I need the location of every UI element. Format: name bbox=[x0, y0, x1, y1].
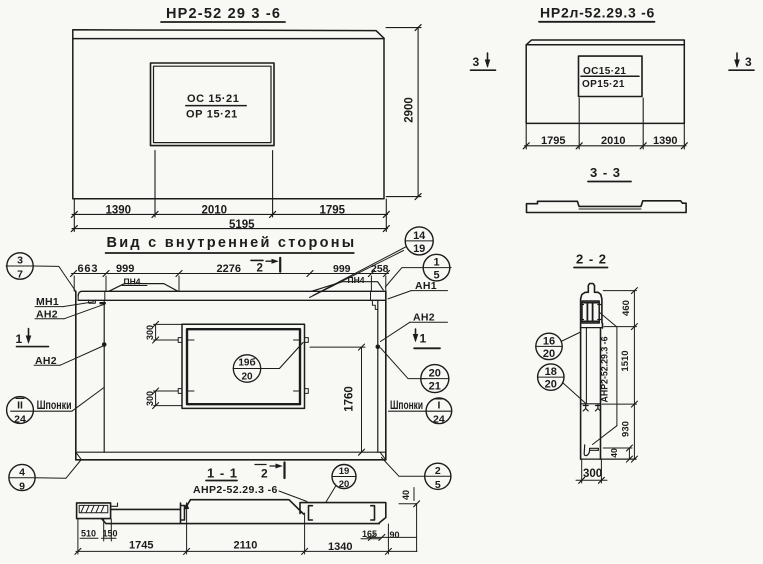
svg-text:I: I bbox=[437, 399, 440, 411]
svg-text:II: II bbox=[17, 399, 23, 411]
svg-text:2900: 2900 bbox=[404, 97, 416, 123]
svg-text:9: 9 bbox=[19, 480, 25, 492]
svg-text:АНР2-52.29.3 -6: АНР2-52.29.3 -6 bbox=[193, 484, 278, 496]
svg-text:3: 3 bbox=[17, 255, 23, 267]
svg-text:ПН4: ПН4 bbox=[124, 276, 141, 286]
svg-text:5195: 5195 bbox=[229, 219, 255, 231]
svg-text:ОР15·21: ОР15·21 bbox=[582, 79, 625, 90]
svg-text:21: 21 bbox=[429, 381, 441, 393]
svg-text:510: 510 bbox=[81, 529, 96, 539]
svg-text:7: 7 bbox=[17, 269, 23, 281]
svg-text:1340: 1340 bbox=[328, 541, 352, 553]
svg-text:АНР2-52.29.3 -6: АНР2-52.29.3 -6 bbox=[600, 336, 610, 402]
svg-text:20: 20 bbox=[429, 368, 441, 380]
svg-text:40: 40 bbox=[609, 448, 619, 458]
svg-text:19: 19 bbox=[413, 243, 425, 255]
svg-text:Шпонки: Шпонки bbox=[390, 400, 423, 412]
svg-text:3: 3 bbox=[473, 55, 480, 69]
svg-text:930: 930 bbox=[621, 421, 632, 437]
svg-text:999: 999 bbox=[333, 263, 351, 275]
svg-text:2: 2 bbox=[257, 263, 263, 275]
svg-text:НР2л-52.29.3 -6: НР2л-52.29.3 -6 bbox=[540, 5, 655, 21]
svg-text:258: 258 bbox=[371, 263, 389, 275]
svg-text:20: 20 bbox=[543, 348, 555, 360]
svg-text:300: 300 bbox=[145, 391, 155, 406]
svg-text:1: 1 bbox=[433, 257, 439, 269]
svg-text:ОР 15·21: ОР 15·21 bbox=[186, 109, 238, 121]
svg-text:3: 3 bbox=[745, 55, 752, 69]
svg-text:2276: 2276 bbox=[217, 263, 241, 275]
svg-text:300: 300 bbox=[583, 468, 602, 480]
svg-text:20: 20 bbox=[241, 372, 253, 383]
svg-text:1: 1 bbox=[420, 332, 427, 346]
svg-text:40: 40 bbox=[401, 490, 411, 500]
svg-text:НР2-52 29 3 -6: НР2-52 29 3 -6 bbox=[166, 6, 281, 22]
svg-text:150: 150 bbox=[103, 529, 118, 539]
svg-text:2: 2 bbox=[435, 465, 441, 477]
svg-text:20: 20 bbox=[339, 479, 350, 490]
svg-text:20: 20 bbox=[545, 379, 557, 391]
svg-text:460: 460 bbox=[621, 300, 632, 316]
svg-text:24: 24 bbox=[433, 413, 445, 425]
svg-text:19б: 19б bbox=[238, 357, 255, 369]
svg-text:5: 5 bbox=[435, 479, 441, 491]
svg-text:1760: 1760 bbox=[344, 386, 356, 412]
svg-text:2110: 2110 bbox=[234, 540, 258, 552]
svg-text:1795: 1795 bbox=[541, 135, 565, 147]
svg-text:2010: 2010 bbox=[202, 205, 228, 217]
svg-text:1390: 1390 bbox=[106, 205, 132, 217]
svg-text:24: 24 bbox=[14, 413, 26, 425]
svg-text:999: 999 bbox=[116, 263, 134, 275]
svg-text:ОС15·21: ОС15·21 bbox=[583, 66, 626, 77]
svg-text:663: 663 bbox=[78, 263, 99, 275]
svg-text:2010: 2010 bbox=[601, 135, 625, 147]
svg-text:19: 19 bbox=[339, 466, 350, 477]
svg-text:90: 90 bbox=[390, 530, 400, 540]
svg-text:2 - 2: 2 - 2 bbox=[576, 252, 607, 267]
svg-text:4: 4 bbox=[19, 466, 25, 478]
svg-text:ОС 15·21: ОС 15·21 bbox=[187, 93, 240, 105]
svg-text:Вид с внутренней стороны: Вид с внутренней стороны bbox=[107, 235, 357, 251]
svg-text:300: 300 bbox=[145, 325, 155, 340]
svg-text:2: 2 bbox=[261, 467, 268, 481]
svg-text:1745: 1745 bbox=[129, 540, 153, 552]
svg-text:16: 16 bbox=[543, 335, 555, 347]
svg-text:14: 14 bbox=[413, 230, 426, 242]
svg-text:1390: 1390 bbox=[653, 135, 677, 147]
svg-text:1: 1 bbox=[16, 332, 23, 346]
svg-text:18: 18 bbox=[545, 366, 557, 378]
svg-text:3 - 3: 3 - 3 bbox=[590, 165, 621, 180]
svg-text:1510: 1510 bbox=[620, 350, 631, 371]
svg-text:1 - 1: 1 - 1 bbox=[207, 466, 238, 481]
svg-text:Шпонки: Шпонки bbox=[37, 400, 72, 412]
svg-text:1795: 1795 bbox=[320, 205, 346, 217]
